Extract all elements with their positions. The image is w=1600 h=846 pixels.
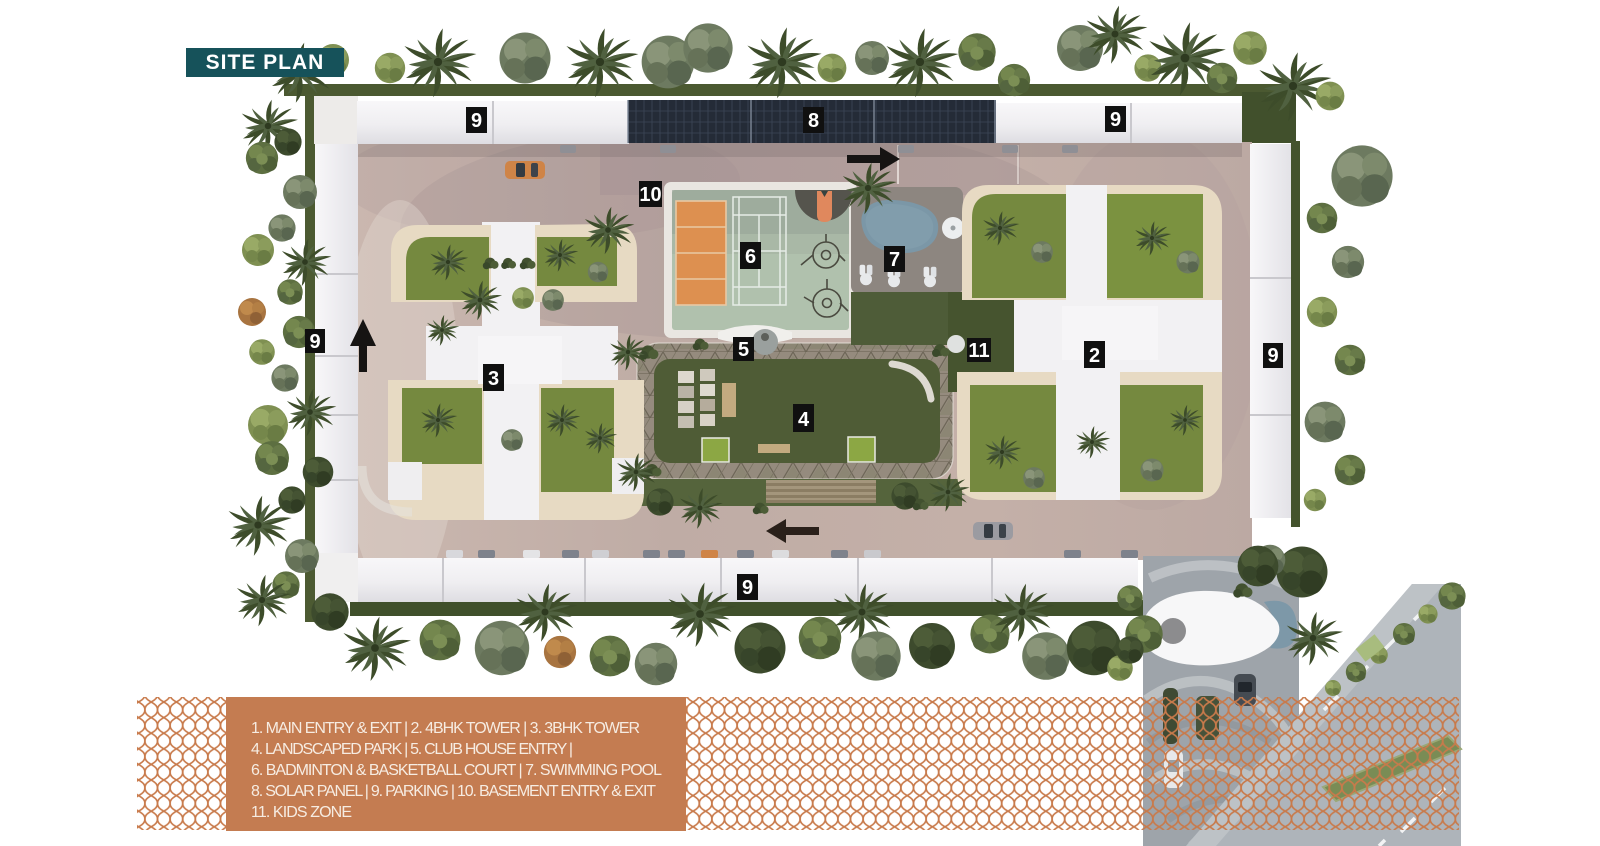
svg-text:11. KIDS ZONE: 11. KIDS ZONE xyxy=(251,804,352,821)
svg-text:11: 11 xyxy=(968,340,989,362)
svg-text:9: 9 xyxy=(309,331,320,353)
svg-text:9: 9 xyxy=(742,577,753,599)
svg-text:10: 10 xyxy=(639,184,661,206)
svg-text:6: 6 xyxy=(745,246,756,268)
svg-text:9: 9 xyxy=(471,110,482,132)
svg-text:5: 5 xyxy=(738,339,749,361)
svg-text:8. SOLAR PANEL | 9. PARKING |: 8. SOLAR PANEL | 9. PARKING | 10. BASEME… xyxy=(251,783,656,800)
svg-text:1. MAIN ENTRY & EXIT | 2. 4BHK: 1. MAIN ENTRY & EXIT | 2. 4BHK TOWER | 3… xyxy=(251,720,640,737)
svg-text:6. BADMINTON & BASKETBALL COUR: 6. BADMINTON & BASKETBALL COURT | 7. SWI… xyxy=(251,762,662,779)
svg-text:8: 8 xyxy=(808,110,819,132)
svg-text:2: 2 xyxy=(1089,345,1100,367)
svg-text:9: 9 xyxy=(1267,345,1278,367)
svg-text:4. LANDSCAPED PARK | 5. CLUB H: 4. LANDSCAPED PARK | 5. CLUB HOUSE ENTRY… xyxy=(251,741,573,758)
svg-text:9: 9 xyxy=(1110,109,1121,131)
svg-text:7: 7 xyxy=(889,249,900,271)
svg-text:3: 3 xyxy=(488,368,499,390)
svg-text:SITE PLAN: SITE PLAN xyxy=(206,51,325,74)
svg-text:4: 4 xyxy=(798,409,810,431)
